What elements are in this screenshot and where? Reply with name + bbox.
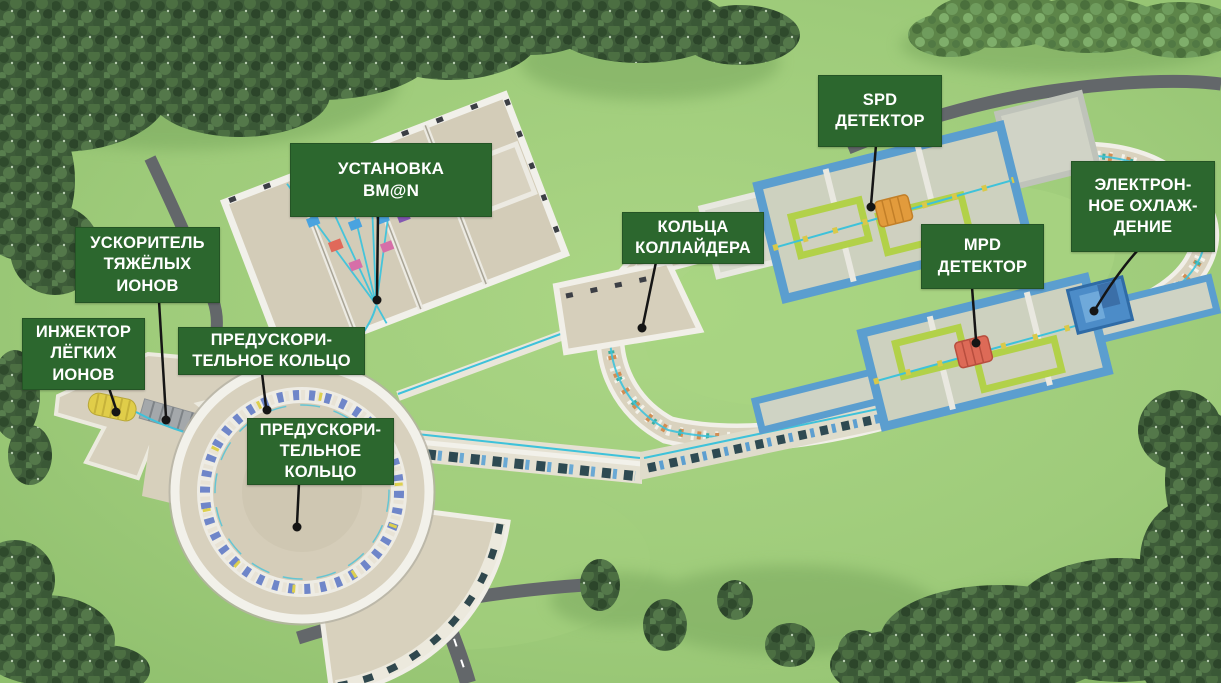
label-heavy-ion-accelerator: УСКОРИТЕЛЬ ТЯЖЁЛЫХ ИОНОВ	[75, 227, 220, 303]
label-text: ИНЖЕКТОР ЛЁГКИХ ИОНОВ	[36, 322, 131, 385]
label-electron-cooling: ЭЛЕКТРОН- НОЕ ОХЛАЖ- ДЕНИЕ	[1071, 161, 1215, 252]
label-text: SPD ДЕТЕКТОР	[835, 90, 924, 132]
label-text: УСКОРИТЕЛЬ ТЯЖЁЛЫХ ИОНОВ	[90, 233, 204, 296]
label-spd-detector: SPD ДЕТЕКТОР	[818, 75, 942, 147]
label-text: ПРЕДУСКОРИ- ТЕЛЬНОЕ КОЛЬЦО	[192, 330, 350, 372]
label-light-ion-injector: ИНЖЕКТОР ЛЁГКИХ ИОНОВ	[22, 318, 145, 390]
label-booster-ring-lower: ПРЕДУСКОРИ- ТЕЛЬНОЕ КОЛЬЦО	[247, 418, 394, 485]
label-mpd-detector: MPD ДЕТЕКТОР	[921, 224, 1044, 289]
label-text: УСТАНОВКА BM@N	[338, 158, 444, 202]
label-text: ПРЕДУСКОРИ- ТЕЛЬНОЕ КОЛЬЦО	[260, 420, 381, 483]
label-bmn-facility: УСТАНОВКА BM@N	[290, 143, 492, 217]
label-text: ЭЛЕКТРОН- НОЕ ОХЛАЖ- ДЕНИЕ	[1088, 175, 1197, 238]
label-text: КОЛЬЦА КОЛЛАЙДЕРА	[635, 217, 751, 259]
nica-complex-diagram: УСТАНОВКА BM@N SPD ДЕТЕКТОР ЭЛЕКТРОН- НО…	[0, 0, 1221, 683]
label-collider-rings: КОЛЬЦА КОЛЛАЙДЕРА	[622, 212, 764, 264]
booster-ring	[170, 360, 434, 624]
label-text: MPD ДЕТЕКТОР	[938, 235, 1027, 277]
label-booster-ring-upper: ПРЕДУСКОРИ- ТЕЛЬНОЕ КОЛЬЦО	[178, 327, 365, 375]
deciduous-tree-row	[908, 0, 1221, 58]
